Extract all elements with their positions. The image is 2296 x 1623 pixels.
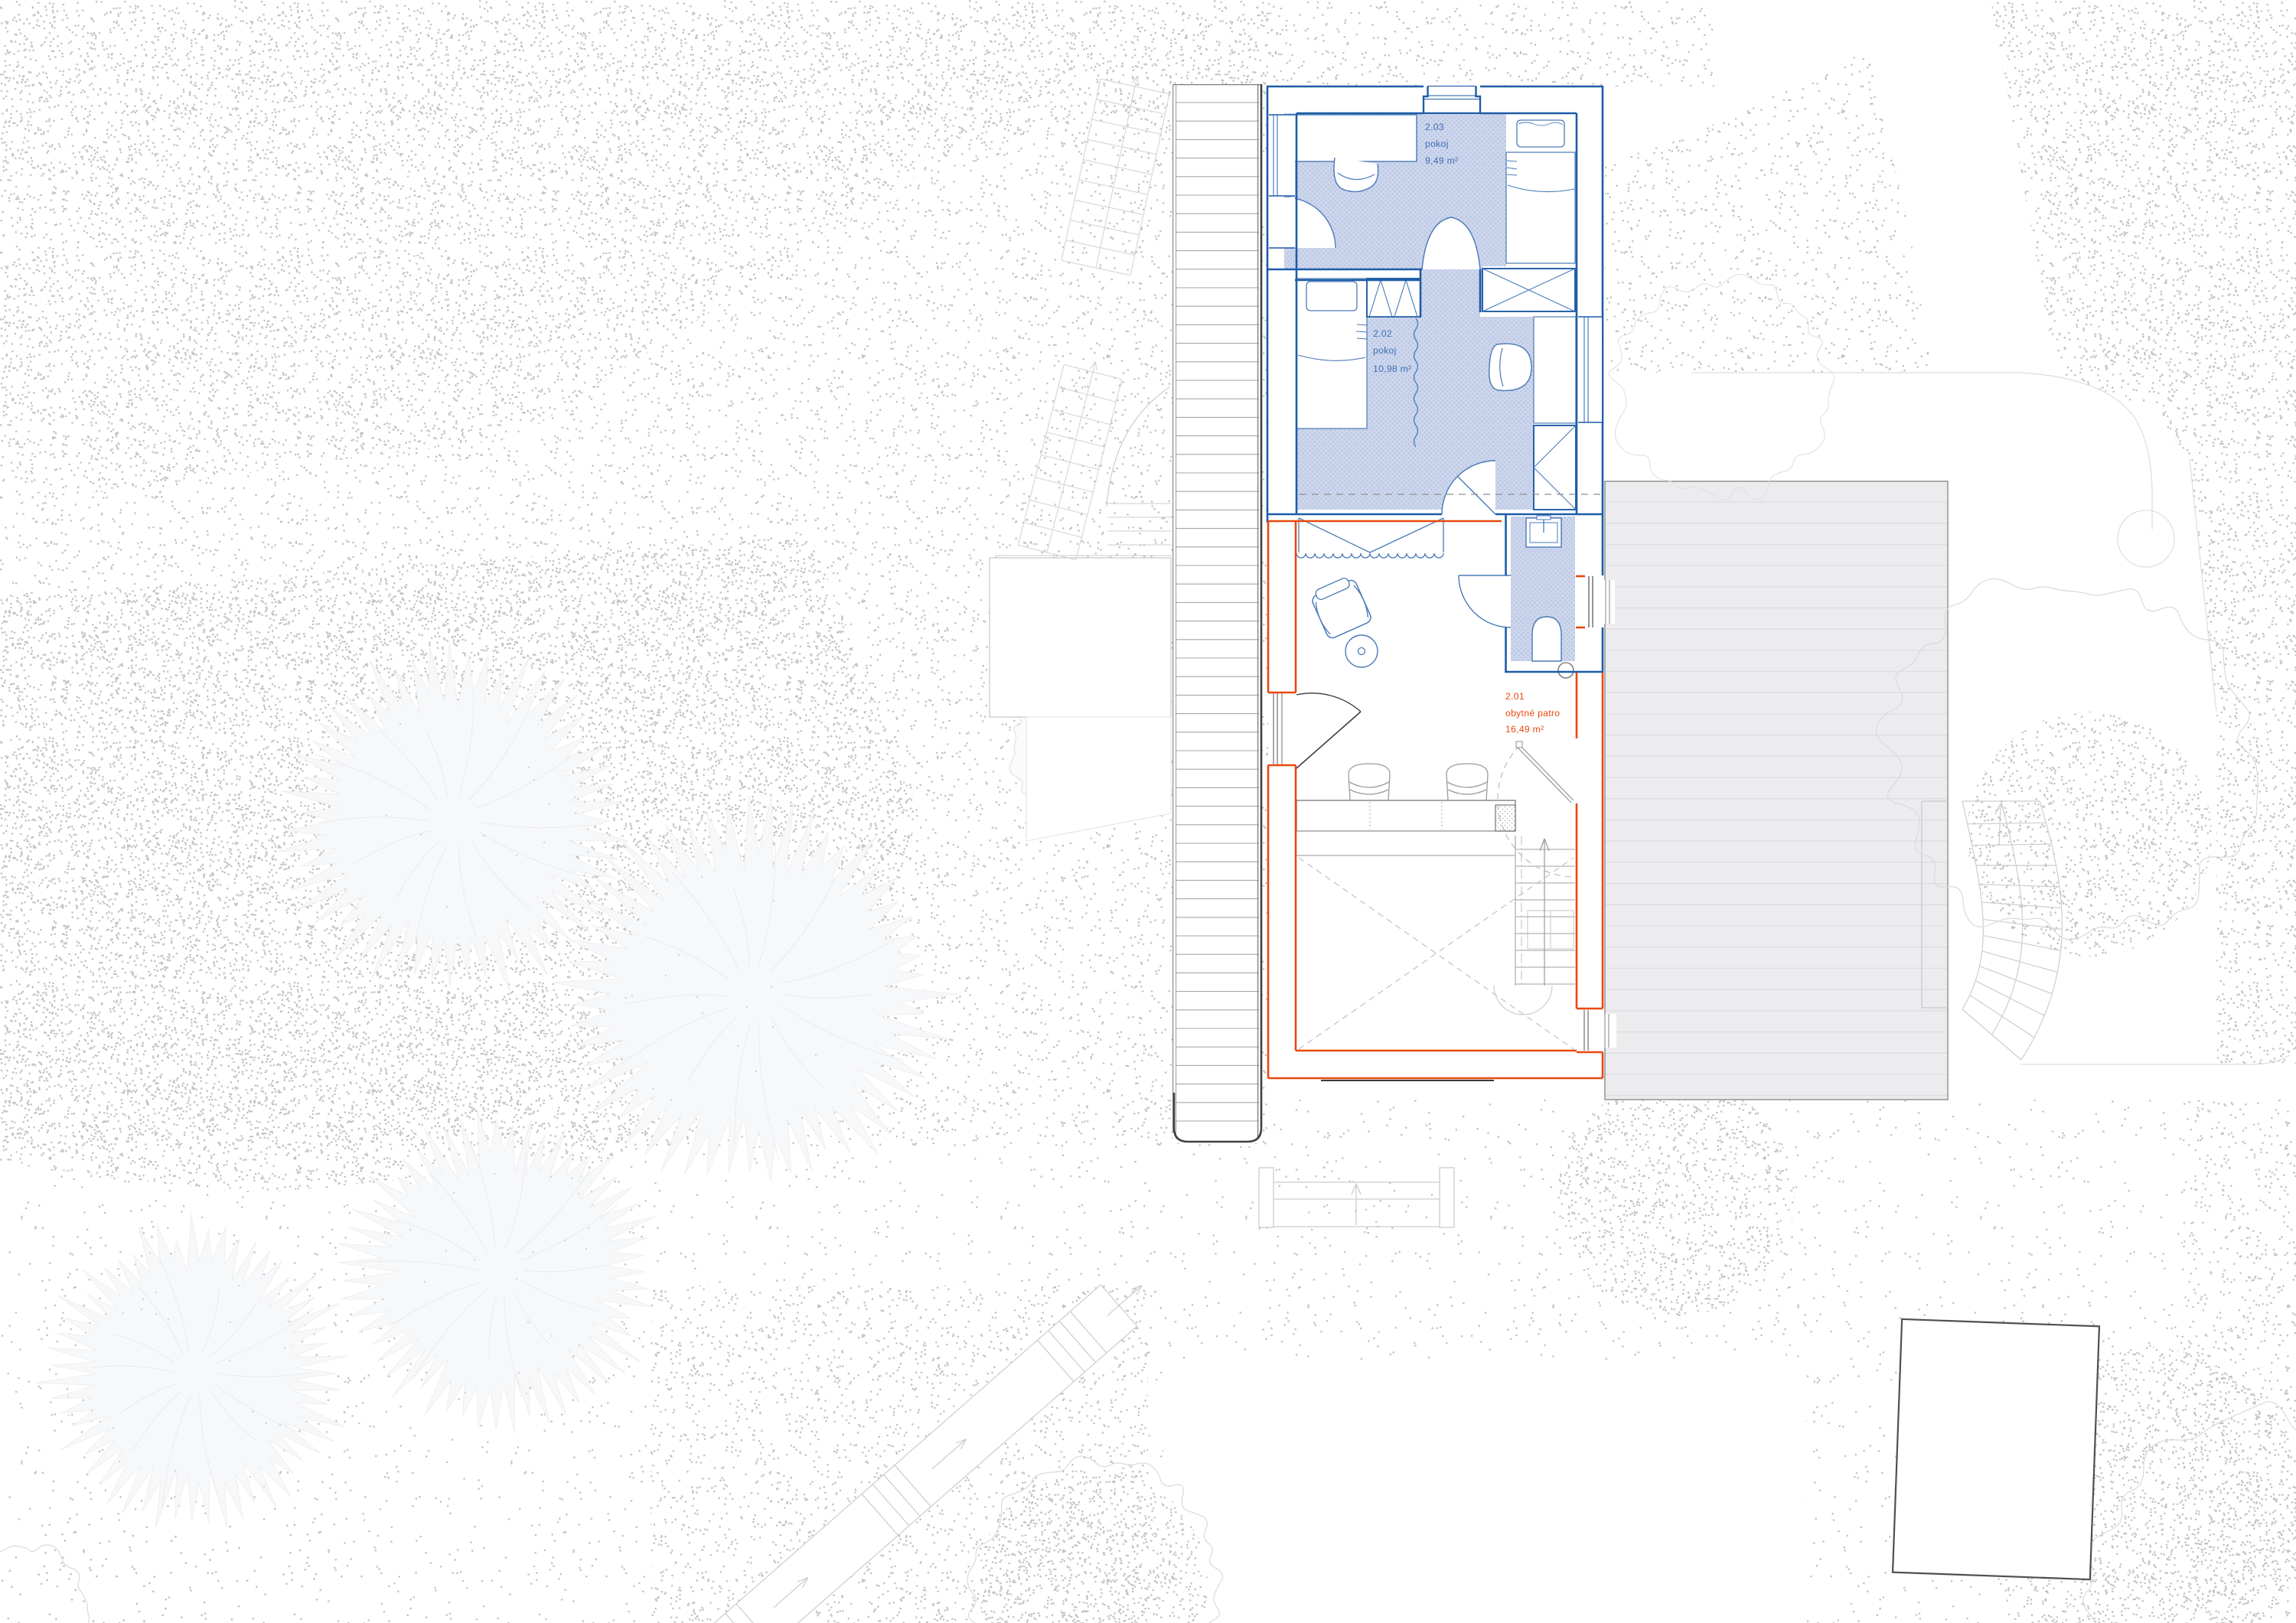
svg-text:2.02: 2.02 — [1373, 328, 1392, 339]
svg-text:2.03: 2.03 — [1425, 122, 1444, 132]
svg-text:pokoj: pokoj — [1425, 139, 1449, 149]
svg-text:pokoj: pokoj — [1373, 345, 1397, 356]
svg-text:obytné patro: obytné patro — [1505, 708, 1560, 719]
svg-text:16,49 m²: 16,49 m² — [1505, 724, 1544, 735]
svg-text:9,49 m²: 9,49 m² — [1425, 155, 1458, 166]
svg-text:10,98 m²: 10,98 m² — [1373, 363, 1412, 374]
svg-text:2.01: 2.01 — [1505, 691, 1525, 702]
